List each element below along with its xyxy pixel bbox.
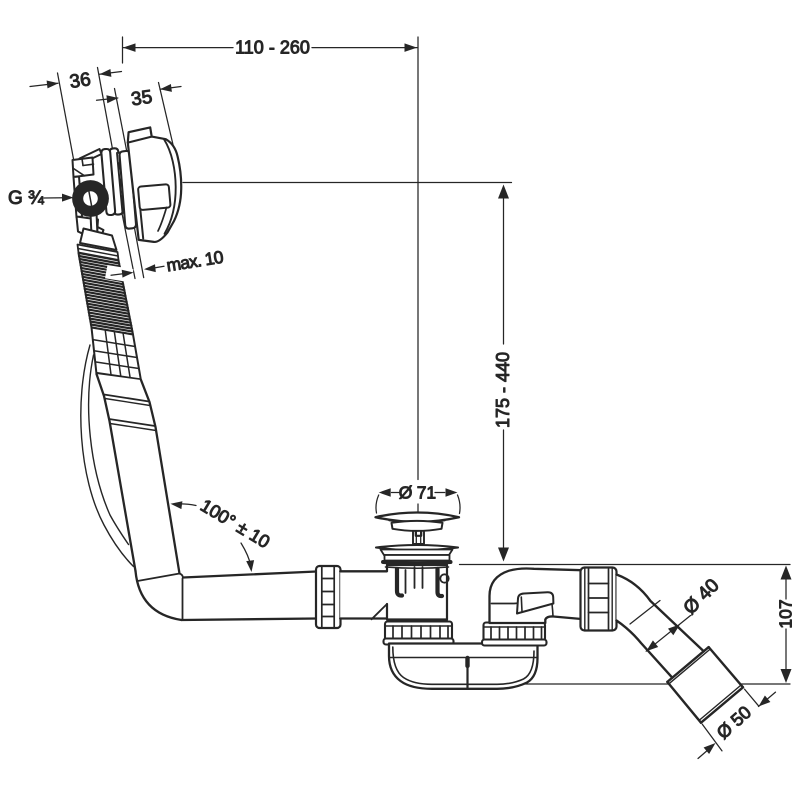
svg-text:36: 36: [68, 69, 92, 93]
svg-text:107: 107: [776, 599, 796, 628]
svg-text:35: 35: [130, 87, 154, 111]
svg-text:G ¾: G ¾: [8, 188, 45, 209]
svg-text:Ø 71: Ø 71: [399, 483, 436, 503]
svg-text:175 - 440: 175 - 440: [493, 352, 513, 428]
svg-text:110 - 260: 110 - 260: [235, 38, 310, 58]
